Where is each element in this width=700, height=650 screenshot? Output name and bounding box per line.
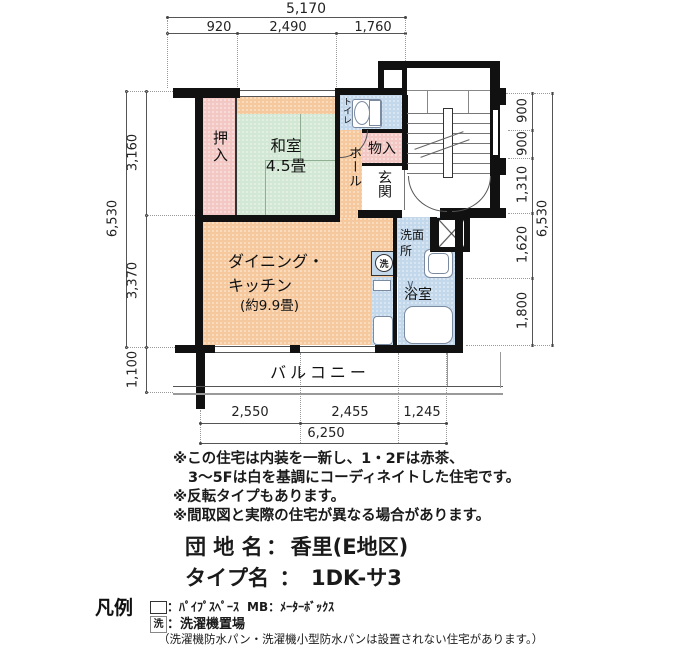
balcony-railing	[173, 386, 503, 395]
wall	[375, 345, 463, 353]
stair-rail	[443, 108, 453, 178]
entrance-door-line	[404, 170, 405, 210]
note-line-4: ※間取図と実際の住宅が異なる場合があります。	[173, 507, 520, 526]
dim-left-total: 6,530	[106, 189, 121, 249]
label-dk-size: (約9.9畳)	[240, 294, 380, 314]
dim-left-balcony: 1,100	[126, 340, 141, 400]
toilet-bowl-icon	[354, 101, 370, 125]
label-oshiire: 押入	[210, 130, 231, 164]
stair-window	[384, 70, 402, 88]
type-name-value: 1DK-サ3	[311, 566, 402, 590]
bathtub-icon	[404, 306, 453, 344]
label-monoire: 物入	[362, 133, 402, 163]
wall	[173, 88, 240, 98]
dim-bottom-seg1: 2,550	[220, 405, 280, 420]
wall	[175, 345, 215, 353]
dim-line	[200, 423, 446, 424]
type-name-label: タイプ名	[185, 566, 269, 590]
floor-plan-page: 5,170 920 2,490 1,760 3,160 3,370 6,530 …	[0, 0, 700, 650]
label-senmenjo1: 洗面	[400, 226, 424, 243]
estate-name-sep: ：	[263, 531, 291, 561]
type-name-sep: ：	[269, 562, 311, 592]
label-senmenjo2: 所	[400, 242, 412, 259]
dim-left-lower: 3,370	[126, 251, 141, 311]
dim-left-upper: 3,160	[126, 123, 141, 183]
label-dk2: キッチン	[228, 272, 368, 296]
entrance-door-arc-left	[408, 176, 447, 212]
washbasin-inner	[428, 253, 449, 274]
label-yokushitsu: 浴室	[404, 284, 432, 304]
dim-bottom-seg3: 1,245	[392, 405, 452, 420]
note-line-2: 3〜5Fは白を基調にコーディネイトした住宅です。	[188, 469, 520, 488]
dim-right-total: 6,530	[536, 189, 551, 249]
legend-note: （洗濯機防水パン・洗濯機小型防水パンは設置されない住宅があります。）	[158, 631, 543, 647]
legend-row-wash: 洗：洗濯機置場	[150, 613, 245, 633]
wall-east	[455, 217, 463, 353]
wall	[195, 215, 340, 222]
dim-top-total: 5,170	[236, 1, 376, 17]
kitchen-sink-icon	[373, 316, 393, 345]
stair-wall	[490, 88, 506, 105]
dim-bottom-seg2: 2,455	[320, 405, 380, 420]
note-line-3: ※反転タイプもあります。	[173, 488, 520, 507]
balcony-side-wall	[196, 353, 205, 409]
type-name-row: タイプ名：1DK-サ3	[185, 562, 402, 592]
dim-right-seg4: 1,620	[516, 215, 531, 275]
legend-mb-text: MB：ﾒｰﾀｰﾎﾞｯｸｽ	[247, 600, 334, 614]
dim-bottom-total: 6,250	[296, 426, 356, 441]
label-toilet: トイレ	[340, 97, 353, 124]
wall	[393, 217, 397, 345]
dim-line	[167, 33, 405, 34]
dim-line	[146, 347, 147, 392]
label-genkan: 玄関	[374, 170, 394, 198]
estate-name-row: 団 地 名：香里(E地区)	[185, 531, 408, 561]
stair-window-east	[493, 110, 498, 155]
laundry-symbol: 洗	[375, 254, 393, 272]
window-south	[203, 346, 375, 353]
stair-wall-south	[440, 208, 506, 218]
label-hall: ホール	[344, 146, 363, 188]
dim-right-seg5: 1,800	[516, 281, 531, 341]
note-line-1: ※この住宅は内装を一新し、1・2Fは赤茶、	[173, 450, 520, 469]
estate-name-value: 香里(E地区)	[291, 535, 409, 559]
legend-wash-text: ：洗濯機置場	[167, 617, 245, 632]
notes-block: ※この住宅は内装を一新し、1・2Fは赤茶、 3〜5Fは白を基調にコーディネイトし…	[173, 450, 520, 526]
label-washitsu-size: 4.5畳	[237, 155, 335, 175]
legend-ps-text: ：ﾊﾟｲﾌﾟｽﾍﾟｰｽ	[167, 600, 239, 614]
dim-right-seg3: 1,310	[516, 155, 531, 215]
toilet-tank-icon	[369, 100, 381, 126]
washitsu-north-strip	[237, 96, 335, 114]
wall	[362, 163, 402, 166]
stove-icon	[373, 280, 391, 291]
dim-line	[552, 93, 553, 345]
stair-wall	[490, 158, 506, 175]
window-north	[240, 90, 335, 97]
wall-pier	[290, 345, 300, 353]
entrance-door-arc-right	[452, 176, 491, 212]
dim-line	[200, 443, 446, 444]
label-balcony: バルコニー	[240, 360, 400, 382]
dim-line	[146, 91, 147, 347]
dim-line	[167, 17, 405, 18]
label-washitsu: 和室	[237, 135, 335, 155]
legend-title: 凡例	[95, 593, 133, 620]
estate-name-label: 団 地 名	[185, 535, 263, 559]
label-dk1: ダイニング・	[228, 248, 368, 272]
